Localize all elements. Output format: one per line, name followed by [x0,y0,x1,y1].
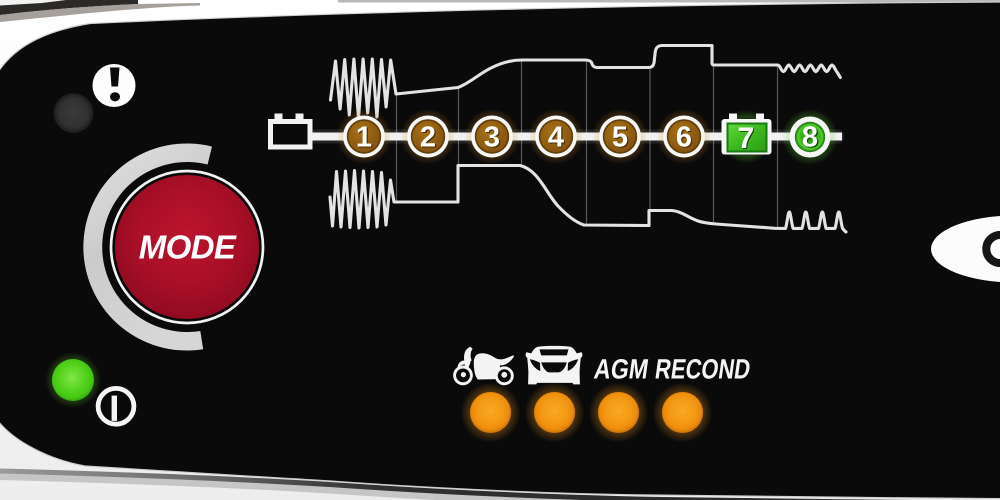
svg-text:8: 8 [802,122,818,154]
svg-text:1: 1 [356,122,372,154]
svg-text:AGM: AGM [592,354,650,385]
svg-text:2: 2 [420,122,436,154]
svg-text:MODE: MODE [139,229,237,266]
svg-text:7: 7 [737,122,754,155]
svg-text:3: 3 [484,122,500,154]
svg-text:RECOND: RECOND [653,354,752,385]
svg-text:4: 4 [548,122,564,154]
svg-text:5: 5 [612,122,628,154]
svg-text:6: 6 [676,122,692,154]
